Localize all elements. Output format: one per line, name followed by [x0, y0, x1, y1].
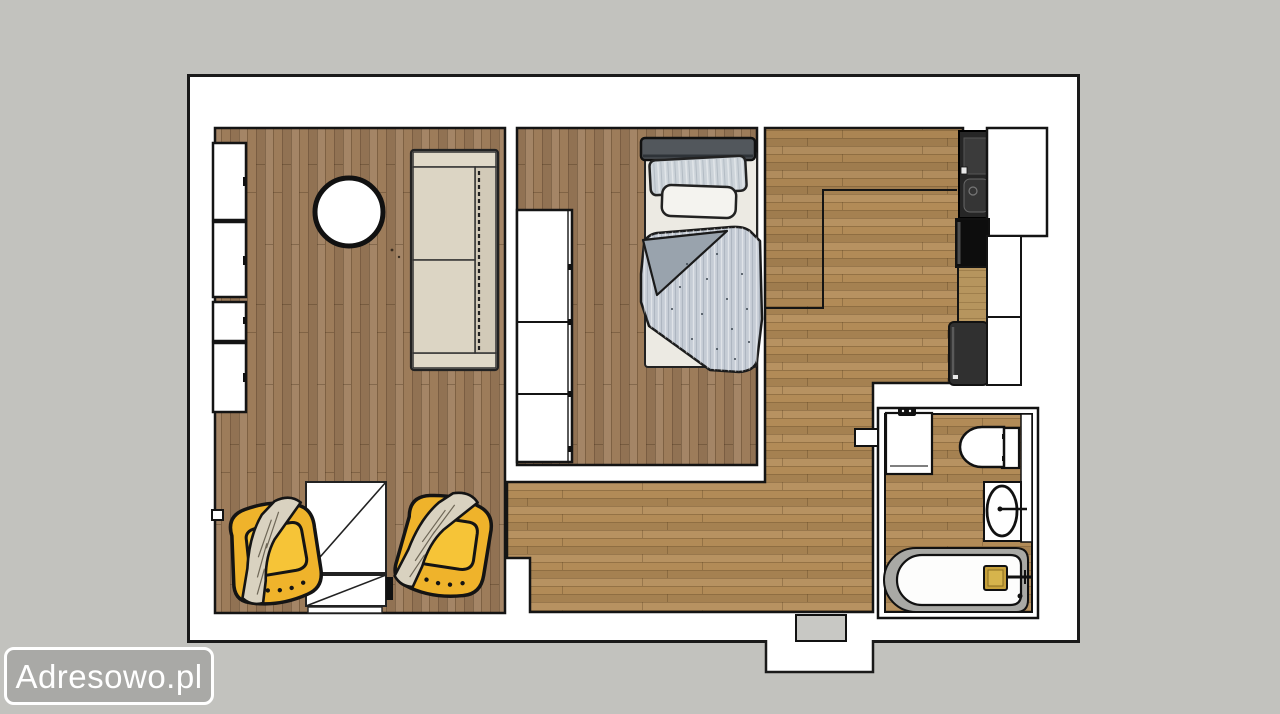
handle	[243, 317, 246, 324]
entrance-mat	[796, 615, 846, 641]
sink-basin-main	[964, 179, 989, 212]
white-pillow	[661, 185, 736, 219]
handle	[243, 256, 246, 265]
kitchen-appliance	[949, 322, 988, 385]
watermark-label: Adresowo.pl	[15, 660, 202, 693]
toilet	[960, 427, 1019, 468]
handle	[243, 373, 246, 382]
washbasin	[984, 482, 1027, 541]
counter-worktop	[958, 267, 990, 327]
bathroom-door	[1021, 414, 1032, 542]
bathroom	[878, 407, 1038, 618]
floorplan	[187, 74, 1080, 675]
wall-notch	[212, 510, 223, 520]
sofa-armrest-top	[413, 152, 496, 167]
bed	[641, 138, 762, 372]
sofa-armrest-bottom	[413, 353, 496, 368]
floorplan-scene: Adresowo.pl	[0, 0, 1280, 714]
handle	[243, 177, 246, 186]
tub-drain	[1018, 594, 1023, 599]
desk-handle	[386, 577, 393, 600]
washing-machine	[886, 407, 932, 474]
base-cabinet	[987, 317, 1021, 385]
toilet-bowl	[960, 427, 1004, 467]
wall-stub	[855, 429, 878, 446]
watermark-badge: Adresowo.pl	[4, 647, 214, 705]
sofa-cushion	[413, 167, 475, 260]
sofa	[411, 150, 498, 370]
wall-wardrobe	[213, 143, 246, 412]
armchair-left	[225, 495, 324, 607]
sofa-cushion	[413, 260, 475, 353]
tall-cabinet	[987, 128, 1047, 236]
sink-faucet	[961, 167, 967, 174]
entrance-recess	[766, 640, 873, 672]
sink-basin-top	[964, 138, 988, 174]
base-cabinet	[987, 236, 1021, 317]
bathtub	[884, 548, 1033, 612]
cooktop	[956, 219, 989, 267]
bedroom-wardrobe	[517, 210, 572, 462]
